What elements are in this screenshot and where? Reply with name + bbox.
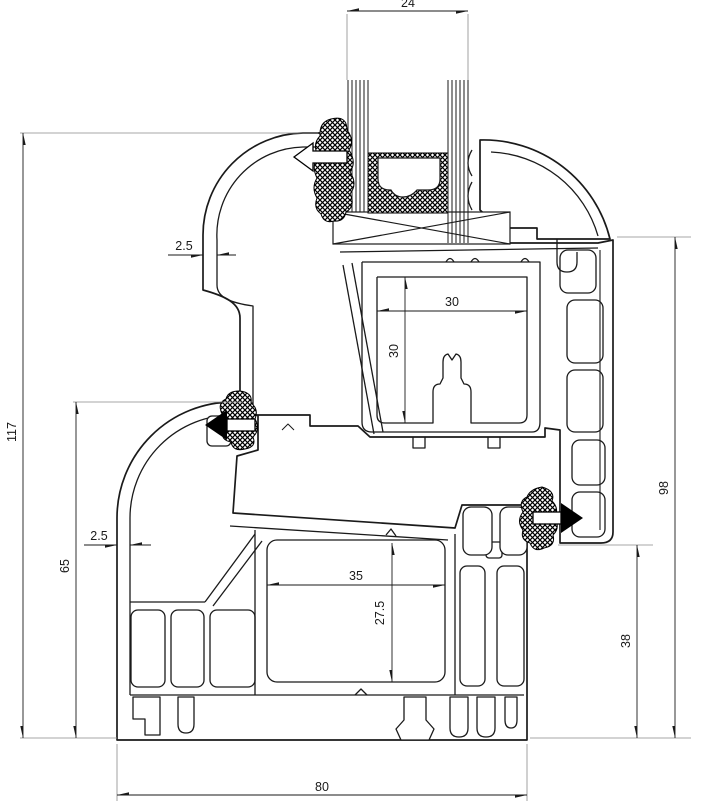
dim-sash-height-label: 98 [657,481,671,495]
dim-sash-wall-label: 2.5 [175,239,192,253]
dim-frame-wall-label: 2.5 [90,529,107,543]
dim-glass-width-label: 24 [401,0,415,10]
dim-chamber-width-label: 35 [349,569,363,583]
window-profile-cross-section: 24 117 65 98 38 80 30 30 35 27.5 2.5 2.5 [0,0,706,804]
window-profile-drawing-page: 24 117 65 98 38 80 30 30 35 27.5 2.5 2.5 [0,0,706,804]
glazing-gasket-top [314,118,354,222]
setting-block [333,212,510,244]
dim-groove-width-label: 30 [445,295,459,309]
frame-profile [117,402,527,740]
dim-frame-height-label: 65 [58,559,72,573]
dim-chamber-height-label: 27.5 [373,601,387,625]
dim-frame-width-label: 80 [315,780,329,794]
dim-overall-height-label: 117 [5,422,19,442]
dim-lower-right-label: 38 [619,634,633,648]
bead-gasket-lips [468,150,472,210]
dim-groove-height-label: 30 [387,344,401,358]
